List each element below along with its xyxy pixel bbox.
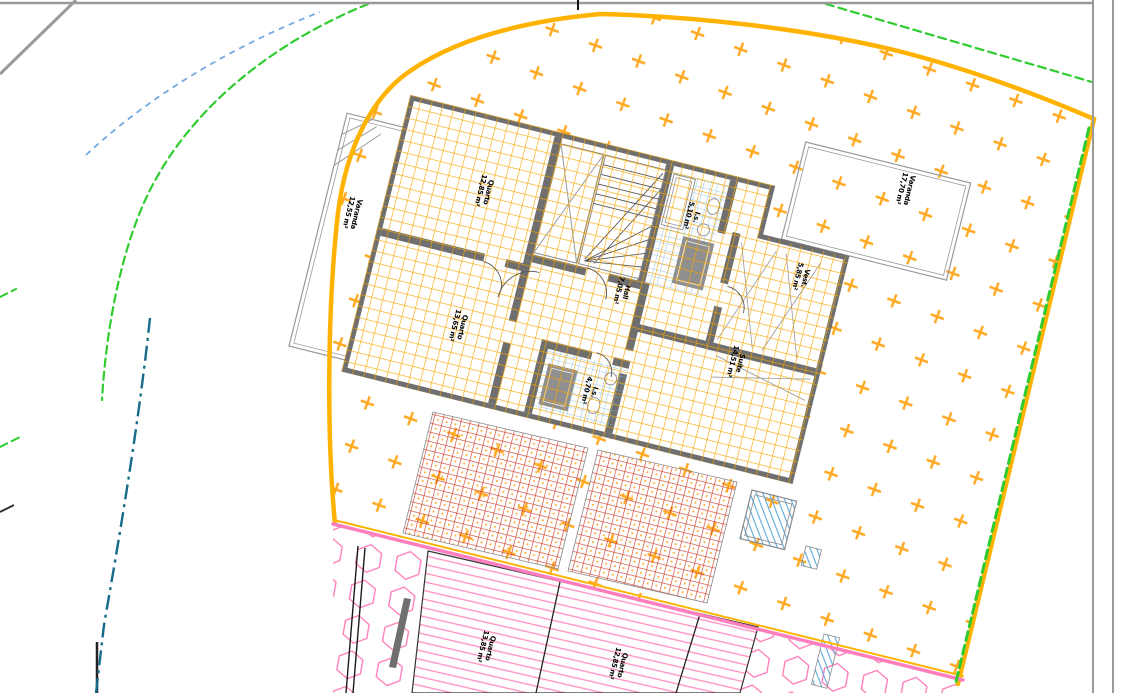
- road-diagonal-topleft: [0, 0, 76, 74]
- segment-black-left-edge: [0, 505, 14, 512]
- site-plan-drawing: [0, 0, 1130, 693]
- cad-drawing-viewport[interactable]: Varanda12,55 m² Quarto12,85 m² Quarto13,…: [0, 0, 1130, 693]
- plot-line-green-edge-bits: [0, 289, 22, 447]
- curve-blue-dashed: [86, 12, 320, 155]
